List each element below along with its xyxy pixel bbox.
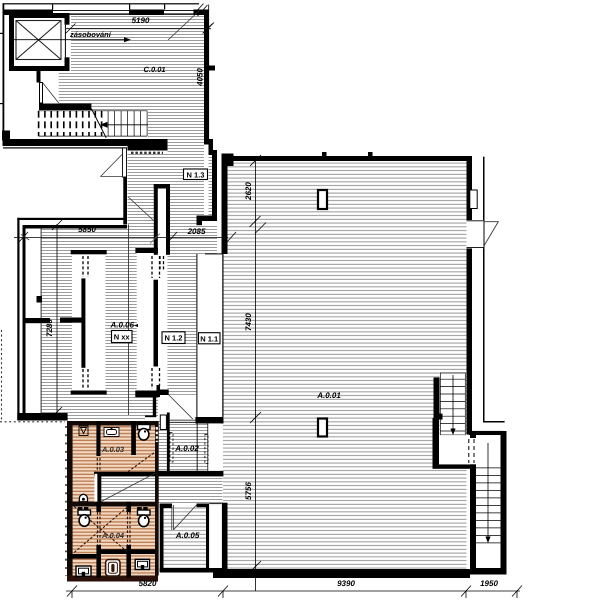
svg-text:N 1.2: N 1.2 <box>165 334 183 343</box>
svg-text:N 1.3: N 1.3 <box>187 170 205 179</box>
svg-text:7430: 7430 <box>244 313 253 331</box>
svg-text:zásobování: zásobování <box>69 30 112 39</box>
svg-text:5850: 5850 <box>78 225 96 234</box>
svg-text:4050: 4050 <box>196 68 205 87</box>
svg-text:2620: 2620 <box>244 182 253 201</box>
svg-text:5820: 5820 <box>139 579 157 588</box>
svg-text:C.0.01: C.0.01 <box>143 65 165 74</box>
svg-text:A.0.03: A.0.03 <box>101 445 125 454</box>
svg-text:9390: 9390 <box>337 579 355 588</box>
svg-text:7280: 7280 <box>45 319 54 337</box>
svg-text:2085: 2085 <box>187 227 206 236</box>
svg-text:5190: 5190 <box>132 16 150 25</box>
svg-text:A.0.01: A.0.01 <box>316 391 341 400</box>
svg-text:N xx: N xx <box>114 333 131 342</box>
svg-text:1950: 1950 <box>480 579 498 588</box>
svg-text:N 1.1: N 1.1 <box>200 334 218 343</box>
svg-text:A.0.05: A.0.05 <box>175 531 200 540</box>
svg-text:5756: 5756 <box>244 482 253 500</box>
svg-text:A.0.02: A.0.02 <box>174 444 199 453</box>
svg-text:A.0.04: A.0.04 <box>101 531 125 540</box>
svg-text:A.0.06: A.0.06 <box>110 321 135 330</box>
